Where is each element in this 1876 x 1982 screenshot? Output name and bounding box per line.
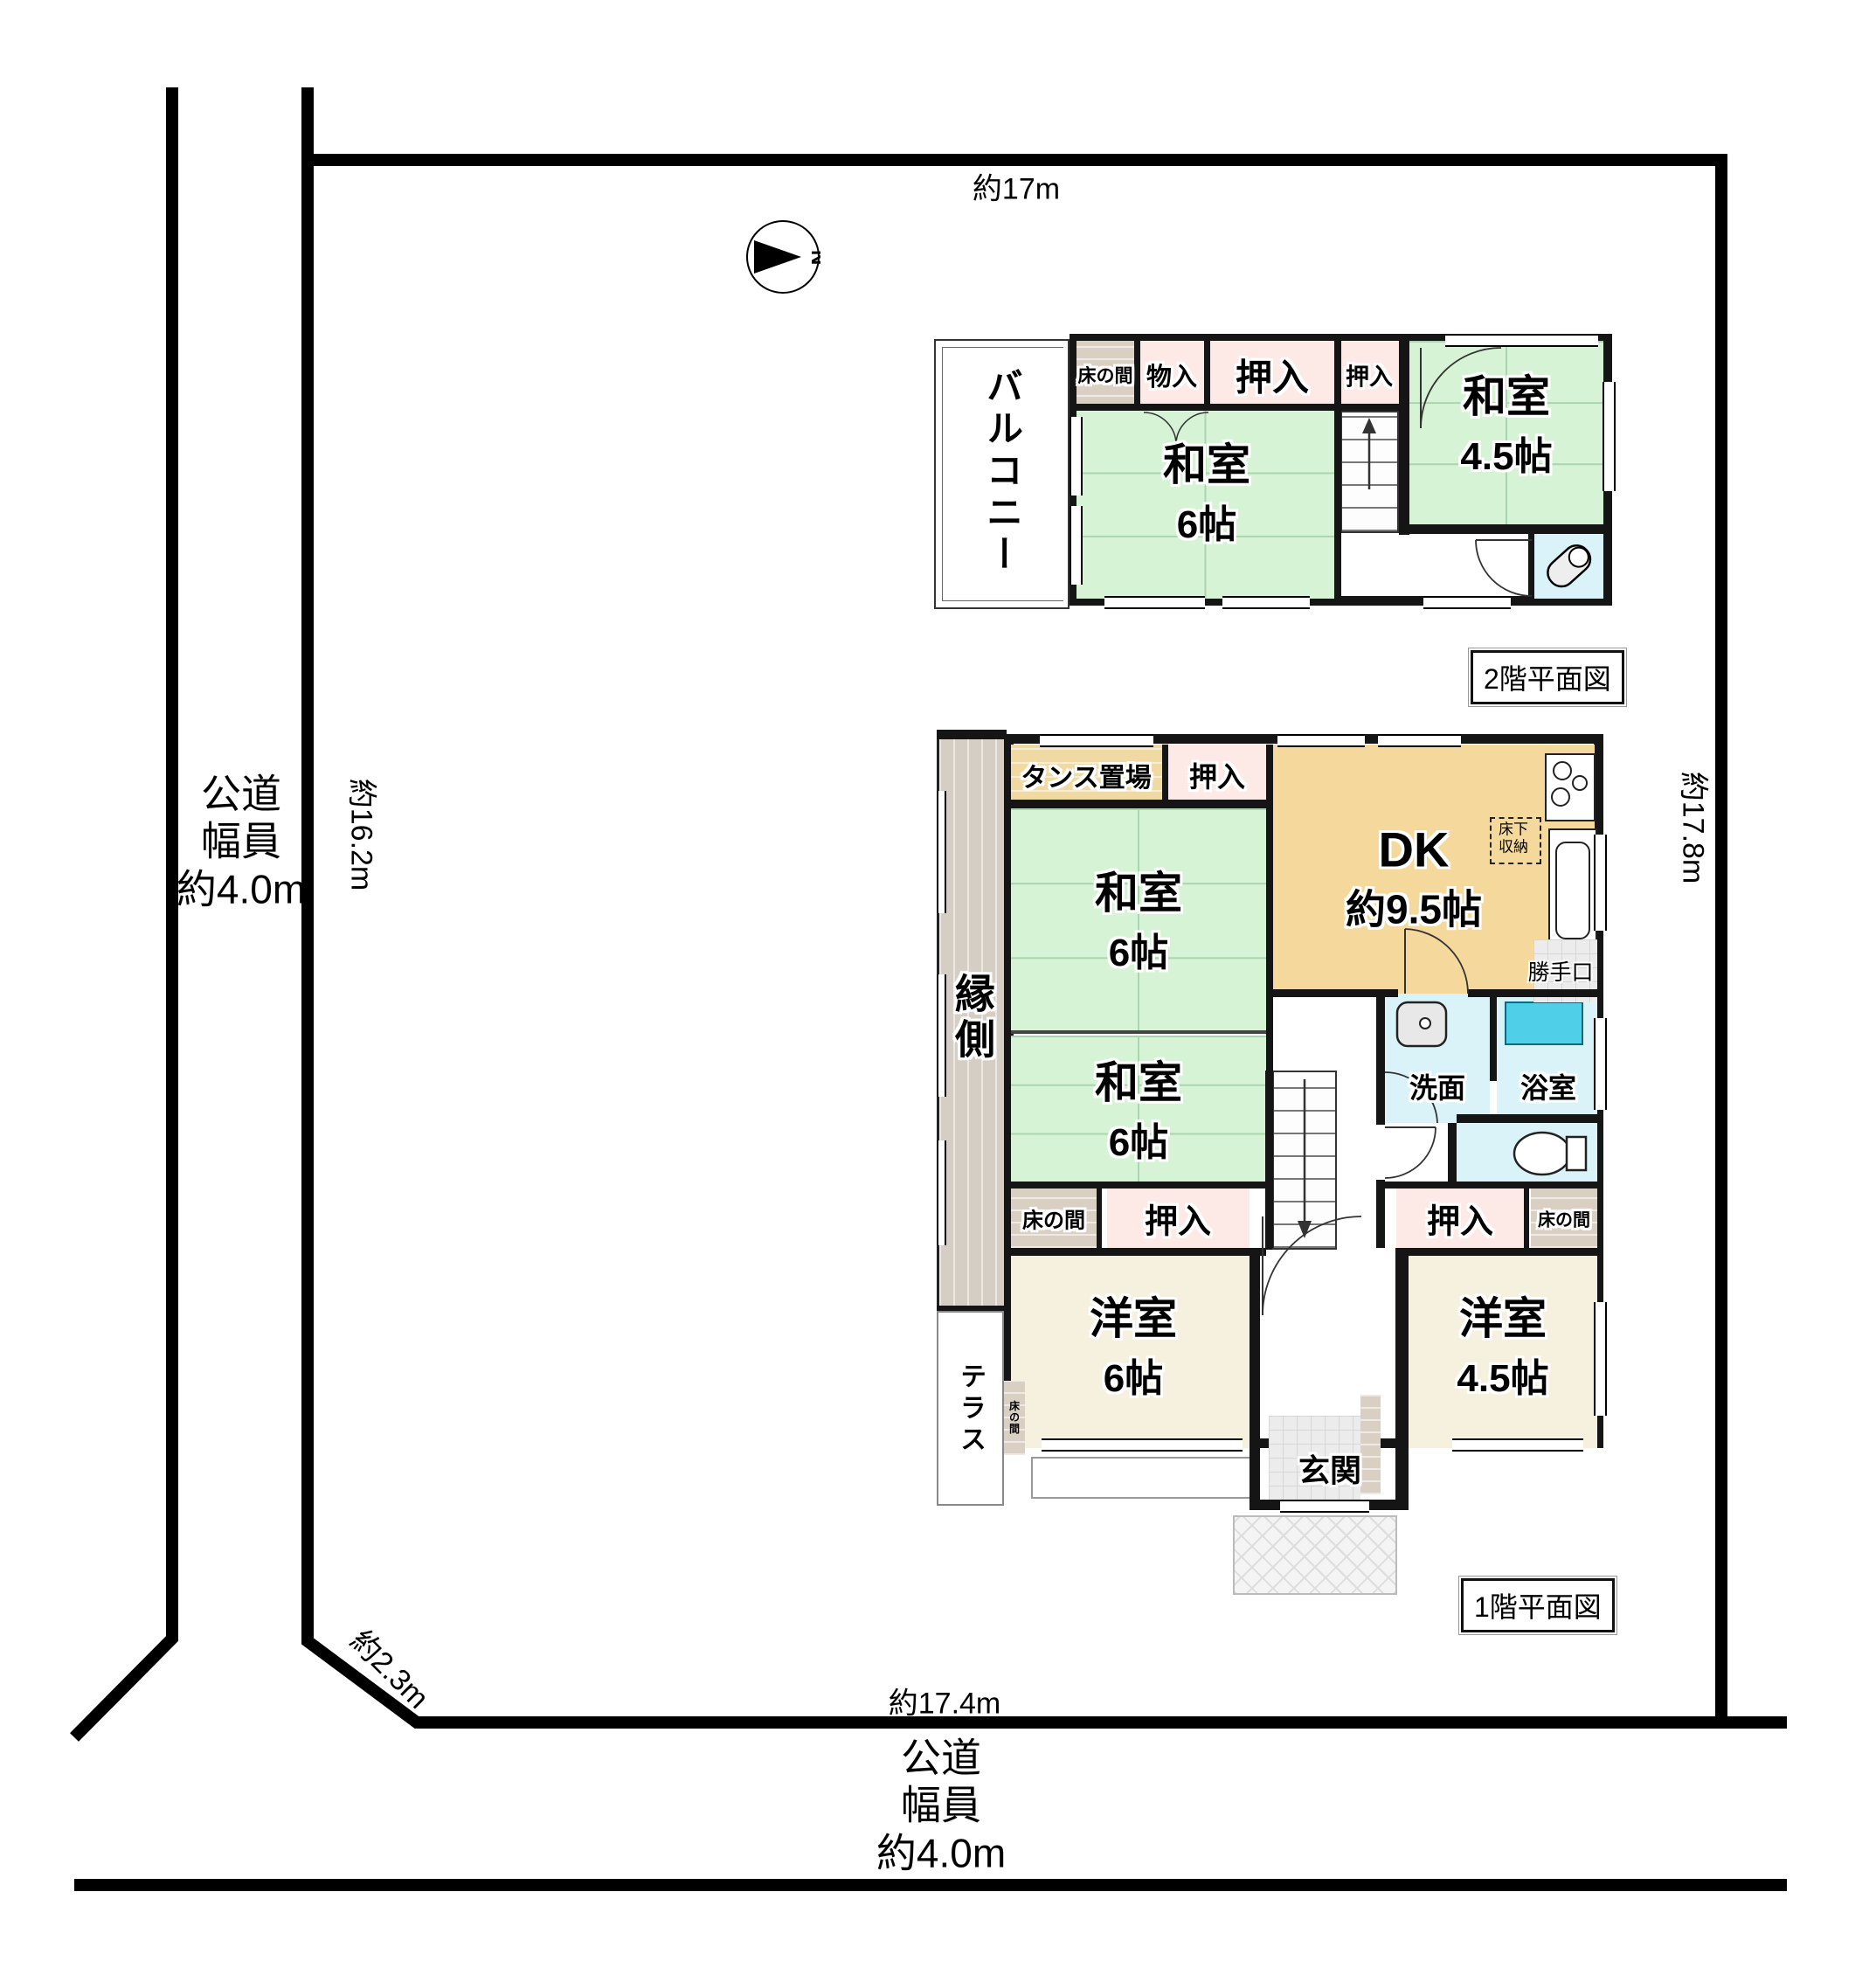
- yoshitsu6-size: 6帖: [1090, 1347, 1177, 1403]
- floor2-title: 2階平面図: [1471, 650, 1624, 704]
- closet-large-2f-label: 押入: [1236, 349, 1309, 402]
- tokonoma-2f-label: 床の間: [1078, 362, 1133, 388]
- dim-bottom: 約17.4m: [889, 1680, 1001, 1722]
- wall-segment: [1376, 1180, 1385, 1248]
- window-mark: [1042, 1438, 1243, 1452]
- backdoor-label: 勝手口: [1527, 955, 1593, 987]
- dim-right: 約17.8m: [1675, 772, 1718, 884]
- washitsu6-upper-name: 和室: [1095, 858, 1182, 921]
- wall-segment: [1457, 1114, 1597, 1123]
- window-mark: [1603, 382, 1616, 491]
- washitsu45-2f-label: 和室 4.5帖: [1460, 362, 1552, 481]
- washitsu6-upper-label: 和室 6帖: [1095, 858, 1182, 977]
- underfloor-line2: 収納: [1499, 839, 1528, 856]
- window-mark: [1423, 596, 1511, 609]
- road-left-outer-line: [74, 87, 172, 1737]
- wall-segment: [1011, 1030, 1266, 1034]
- svg-text:N: N: [806, 250, 820, 265]
- wall-segment: [1385, 1182, 1597, 1189]
- balcony-label: バルコニー: [976, 367, 1029, 577]
- floor1-plan: 縁側 テラス 床の間 タンス置場 押入 DK 約9.5帖 床下 収納 勝手口 和…: [937, 730, 1603, 1604]
- yoshitsu45-name: 洋室: [1457, 1284, 1548, 1347]
- wall-segment: [1250, 1248, 1260, 1510]
- wall-segment: [1409, 524, 1612, 534]
- dim-corner: 約2.3m: [343, 1618, 440, 1716]
- tokonoma-left-label: 床の間: [1022, 1203, 1085, 1234]
- wall-segment: [1011, 1182, 1266, 1189]
- tokonoma-right-label: 床の間: [1538, 1206, 1590, 1231]
- washitsu6-lower-name: 和室: [1095, 1048, 1182, 1111]
- kitchen-sink-icon: [1555, 842, 1590, 939]
- washitsu6-2f-size: 6帖: [1163, 493, 1250, 549]
- window-mark: [937, 1140, 946, 1245]
- yoshitsu6-label: 洋室 6帖: [1090, 1284, 1177, 1403]
- window-mark: [1070, 417, 1083, 495]
- stove-icon: [1545, 753, 1596, 821]
- wall-segment: [1162, 745, 1168, 800]
- washitsu6-2f-label: 和室 6帖: [1163, 430, 1250, 549]
- washitsu6-lower-label: 和室 6帖: [1095, 1048, 1182, 1167]
- engawa-label: 縁側: [944, 973, 1001, 1064]
- wall-segment: [1334, 341, 1341, 600]
- dk-name: DK: [1346, 821, 1482, 878]
- road-label-bottom-line2: 幅員: [901, 1783, 981, 1828]
- closet-small-2f-label: 押入: [1346, 358, 1393, 392]
- shoe-cabinet: [1360, 1395, 1381, 1494]
- wall-segment: [1524, 1189, 1529, 1248]
- bath-label: 浴室: [1520, 1066, 1576, 1106]
- window-mark: [1594, 1302, 1607, 1416]
- wall-segment: [1528, 533, 1534, 600]
- window-mark: [1222, 596, 1310, 609]
- wall-segment: [1468, 989, 1597, 997]
- floorplan-canvas: N 約17m 約16.2m 約17.8m 約17.4m 約2.3m 公道 幅員 …: [0, 0, 1876, 1982]
- wall-segment: [1448, 1123, 1457, 1189]
- floor2-plan: バルコニー 床の間 物入 押入 押入 和室 6帖 和室 4.5帖: [934, 334, 1612, 611]
- window-mark: [1594, 835, 1607, 931]
- genkan-label: 玄関: [1298, 1445, 1361, 1491]
- wall-segment: [1376, 994, 1385, 1125]
- wall-segment: [1490, 994, 1497, 1081]
- dk-label: DK 約9.5帖: [1346, 821, 1482, 936]
- exterior-step: [1031, 1457, 1254, 1499]
- wall-segment: [1076, 404, 1399, 411]
- washitsu45-2f-size: 4.5帖: [1460, 425, 1552, 481]
- tokonoma-small-label: 床の間: [1007, 1401, 1022, 1435]
- window-mark: [1277, 734, 1365, 747]
- yoshitsu45-size: 4.5帖: [1457, 1347, 1548, 1403]
- washitsu6-lower-size: 6帖: [1095, 1111, 1182, 1167]
- washitsu45-2f-name: 和室: [1460, 362, 1552, 425]
- road-label-left-line1: 公道: [201, 772, 281, 817]
- toilet-room: [1448, 1123, 1597, 1182]
- window-mark: [1445, 334, 1598, 347]
- closet-left-label: 押入: [1145, 1195, 1211, 1243]
- window-mark: [1378, 734, 1461, 747]
- terrace-label: テラス: [951, 1362, 989, 1457]
- wall-segment: [1369, 1500, 1409, 1510]
- senmen-label: 洗面: [1409, 1066, 1465, 1106]
- stairs-1f: [1272, 1071, 1337, 1250]
- closet-right-label: 押入: [1427, 1195, 1493, 1243]
- bathtub-1f: [1505, 1001, 1583, 1045]
- window-mark: [1104, 596, 1205, 609]
- storage-2f-label: 物入: [1146, 357, 1197, 393]
- wall-segment: [1134, 341, 1140, 405]
- yoshitsu45-label: 洋室 4.5帖: [1457, 1284, 1548, 1403]
- wall-segment: [1097, 1189, 1102, 1248]
- tansu-label: タンス置場: [1021, 756, 1151, 794]
- wall-segment: [1399, 341, 1409, 535]
- wall-segment: [1265, 1071, 1272, 1250]
- window-mark: [1040, 734, 1153, 747]
- entrance-door-mark: [1280, 1500, 1369, 1513]
- washitsu6-2f-name: 和室: [1163, 430, 1250, 493]
- road-label-left: 公道 幅員 約4.0m: [177, 771, 306, 913]
- road-label-bottom-line3: 約4.0m: [876, 1830, 1006, 1875]
- dim-left: 約16.2m: [343, 779, 386, 891]
- window-mark: [937, 791, 946, 913]
- wall-segment: [937, 730, 1007, 739]
- washitsu6-upper-size: 6帖: [1095, 921, 1182, 977]
- north-arrow-icon: N: [745, 219, 820, 295]
- road-label-left-line3: 約4.0m: [177, 866, 306, 911]
- dk-size: 約9.5帖: [1346, 878, 1482, 936]
- wall-segment: [1011, 800, 1266, 808]
- wall-segment: [1204, 341, 1210, 405]
- stairs-2f: [1340, 411, 1399, 533]
- underfloor-line1: 床下: [1499, 821, 1528, 839]
- road-label-left-line2: 幅員: [201, 819, 281, 864]
- wall-segment: [1011, 1248, 1266, 1256]
- floor1-title: 1階平面図: [1461, 1578, 1615, 1632]
- window-mark: [1070, 506, 1083, 585]
- window-mark: [1452, 1438, 1583, 1452]
- dim-top: 約17m: [973, 165, 1060, 208]
- bath-closet-2f: [1534, 533, 1603, 599]
- window-mark: [1594, 1018, 1607, 1110]
- wall-segment: [1396, 1248, 1597, 1256]
- entrance-porch: [1233, 1515, 1397, 1595]
- underfloor-label: 床下 収納: [1499, 821, 1528, 857]
- road-label-bottom: 公道 幅員 約4.0m: [876, 1735, 1006, 1877]
- yoshitsu6-name: 洋室: [1090, 1284, 1177, 1347]
- wall-segment: [1250, 1500, 1280, 1510]
- road-label-bottom-line1: 公道: [901, 1736, 981, 1781]
- wall-segment: [1395, 1248, 1409, 1510]
- closet-top-label: 押入: [1189, 755, 1245, 795]
